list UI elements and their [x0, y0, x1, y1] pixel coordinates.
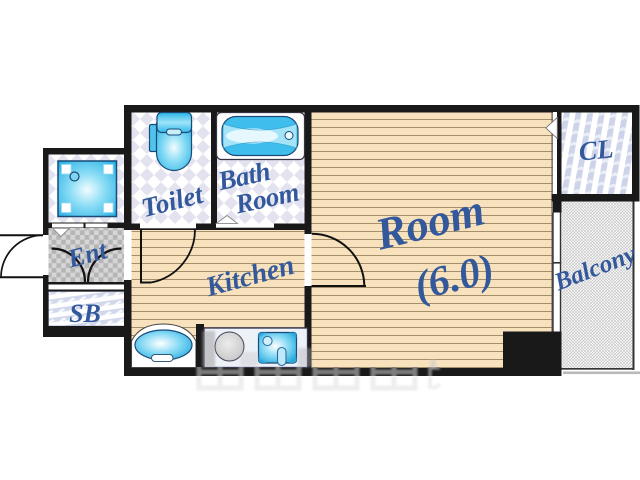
- svg-text:CL: CL: [577, 133, 614, 166]
- svg-text:SB: SB: [69, 299, 101, 328]
